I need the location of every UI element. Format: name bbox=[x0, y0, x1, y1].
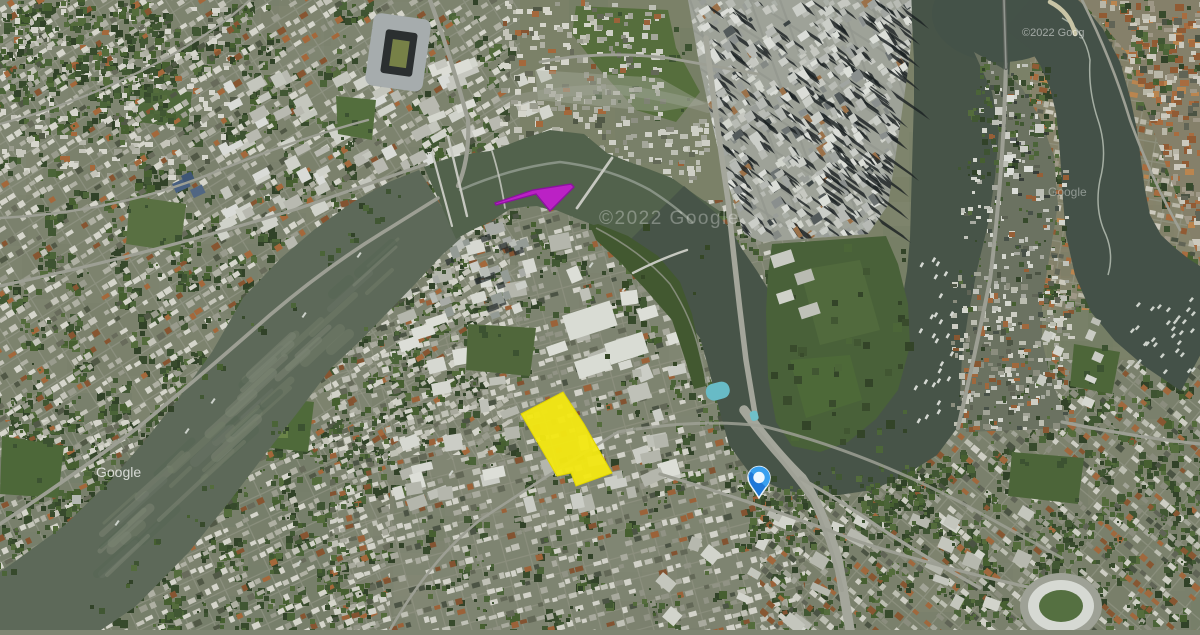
svg-text:©2022 Goog: ©2022 Goog bbox=[1022, 27, 1085, 39]
svg-text:Google: Google bbox=[96, 464, 141, 480]
svg-text:Google: Google bbox=[1048, 185, 1087, 199]
svg-text:©2022 Google: ©2022 Google bbox=[599, 208, 740, 229]
